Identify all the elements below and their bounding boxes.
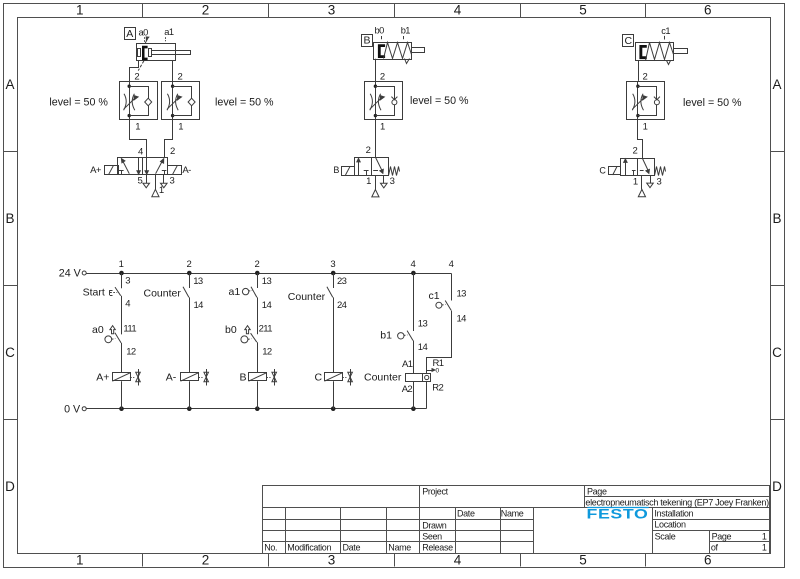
svg-text:Release: Release: [422, 543, 453, 553]
svg-text:Page: Page: [587, 486, 607, 496]
svg-text:a0: a0: [92, 324, 104, 336]
svg-text:a1: a1: [229, 286, 241, 298]
svg-text:level = 50 %: level = 50 %: [215, 96, 274, 108]
svg-text:2: 2: [134, 71, 139, 82]
svg-text:D: D: [772, 479, 782, 494]
svg-text:4: 4: [138, 147, 143, 158]
svg-text:3: 3: [656, 176, 661, 187]
svg-text:3: 3: [328, 3, 336, 18]
svg-text:Project: Project: [422, 486, 448, 496]
svg-text:C: C: [772, 345, 782, 360]
svg-text:b0: b0: [225, 324, 237, 336]
svg-text:A: A: [772, 77, 781, 92]
svg-text:c1: c1: [661, 26, 670, 36]
svg-text:1: 1: [76, 3, 84, 18]
svg-text:2: 2: [202, 3, 210, 18]
svg-text:3: 3: [390, 176, 395, 187]
svg-text:13: 13: [457, 289, 467, 300]
svg-text:A1: A1: [402, 359, 413, 370]
svg-text:2: 2: [202, 553, 210, 568]
svg-text:No.: No.: [264, 543, 277, 553]
svg-text:A: A: [126, 28, 133, 40]
svg-text:1: 1: [762, 543, 767, 553]
svg-text:3: 3: [330, 259, 335, 270]
svg-text:c1: c1: [429, 290, 440, 302]
svg-text:Counter: Counter: [144, 287, 182, 299]
svg-text:2: 2: [170, 146, 175, 157]
svg-text:4: 4: [454, 3, 462, 18]
svg-text:3: 3: [125, 275, 130, 286]
svg-text:b1: b1: [380, 329, 392, 341]
svg-text:13: 13: [262, 276, 272, 287]
svg-text:Name: Name: [501, 508, 524, 518]
svg-text:14: 14: [194, 300, 204, 311]
svg-text:2: 2: [366, 145, 371, 156]
svg-text:C: C: [315, 371, 323, 383]
svg-text:6: 6: [704, 553, 712, 568]
svg-text:of: of: [711, 543, 719, 553]
svg-text:Drawn: Drawn: [422, 520, 447, 530]
svg-text:Installation: Installation: [654, 508, 693, 518]
svg-text:FESTO: FESTO: [587, 507, 649, 523]
svg-text:12: 12: [262, 346, 272, 357]
svg-text:A+: A+: [96, 371, 109, 383]
svg-text:2: 2: [632, 145, 637, 156]
svg-text:B: B: [5, 211, 14, 226]
svg-text:C: C: [599, 165, 606, 175]
svg-text:A-: A-: [182, 165, 191, 176]
svg-text:B: B: [240, 371, 247, 383]
svg-text:1: 1: [135, 122, 140, 133]
svg-text:13: 13: [193, 276, 203, 287]
svg-text:Counter: Counter: [364, 372, 402, 384]
svg-text:A2: A2: [402, 384, 413, 395]
svg-text:A: A: [5, 77, 14, 92]
svg-text:Date: Date: [343, 543, 361, 553]
svg-text:Page: Page: [712, 531, 732, 541]
svg-text:1: 1: [366, 176, 371, 187]
svg-text:5: 5: [137, 176, 142, 187]
svg-text:level = 50 %: level = 50 %: [683, 97, 742, 109]
svg-text:Seen: Seen: [422, 531, 442, 541]
svg-text:A+: A+: [90, 165, 102, 176]
svg-text:2: 2: [254, 259, 259, 270]
svg-text:2: 2: [186, 259, 191, 270]
svg-text:4: 4: [125, 299, 130, 310]
svg-text:Name: Name: [388, 543, 411, 553]
svg-text:5: 5: [579, 3, 587, 18]
svg-text:23: 23: [337, 276, 347, 287]
svg-text:1: 1: [643, 122, 648, 133]
svg-text:Counter: Counter: [288, 291, 326, 303]
svg-text:4: 4: [411, 259, 416, 270]
svg-text:6: 6: [704, 3, 712, 18]
svg-text:C: C: [5, 345, 15, 360]
svg-text:Start: Start: [83, 287, 105, 299]
svg-text:14: 14: [262, 300, 272, 311]
svg-text:Date: Date: [457, 508, 475, 518]
svg-text:24 V: 24 V: [59, 267, 82, 279]
svg-text:14: 14: [457, 314, 467, 325]
svg-text:1: 1: [633, 176, 638, 187]
svg-text:a0: a0: [139, 27, 149, 37]
svg-text:level = 50 %: level = 50 %: [49, 96, 108, 108]
svg-text:2: 2: [380, 71, 385, 82]
svg-text:1: 1: [76, 553, 84, 568]
svg-text:B: B: [772, 211, 781, 226]
svg-text:R2: R2: [432, 383, 443, 394]
svg-text:24: 24: [337, 300, 347, 311]
svg-text:0 V: 0 V: [64, 403, 81, 415]
svg-text:1: 1: [380, 122, 385, 133]
svg-text:b1: b1: [401, 26, 411, 36]
svg-text:4: 4: [454, 553, 462, 568]
svg-text:B: B: [333, 165, 339, 175]
svg-text:111: 111: [123, 323, 136, 334]
svg-text:1: 1: [178, 122, 183, 133]
svg-text:level = 50 %: level = 50 %: [410, 95, 469, 107]
svg-text:b0: b0: [375, 26, 385, 36]
svg-text:1: 1: [762, 531, 767, 541]
svg-text:2: 2: [177, 71, 182, 82]
svg-text:a1: a1: [164, 27, 174, 37]
svg-text:A-: A-: [166, 371, 177, 383]
svg-text:211: 211: [259, 323, 273, 334]
svg-text:4: 4: [449, 259, 454, 270]
svg-text:12: 12: [126, 346, 136, 357]
svg-text:1: 1: [119, 259, 124, 270]
svg-text:Location: Location: [654, 520, 686, 530]
svg-text:13: 13: [418, 318, 428, 329]
svg-text:2: 2: [642, 71, 647, 82]
svg-text:3: 3: [328, 553, 336, 568]
svg-text:5: 5: [579, 553, 587, 568]
svg-text:C: C: [625, 35, 633, 47]
svg-text:Modification: Modification: [287, 543, 331, 553]
svg-text:D: D: [5, 479, 15, 494]
svg-text:Scale: Scale: [655, 531, 676, 541]
svg-text:B: B: [363, 35, 370, 47]
svg-text:3: 3: [169, 176, 174, 187]
svg-text:14: 14: [418, 342, 428, 353]
